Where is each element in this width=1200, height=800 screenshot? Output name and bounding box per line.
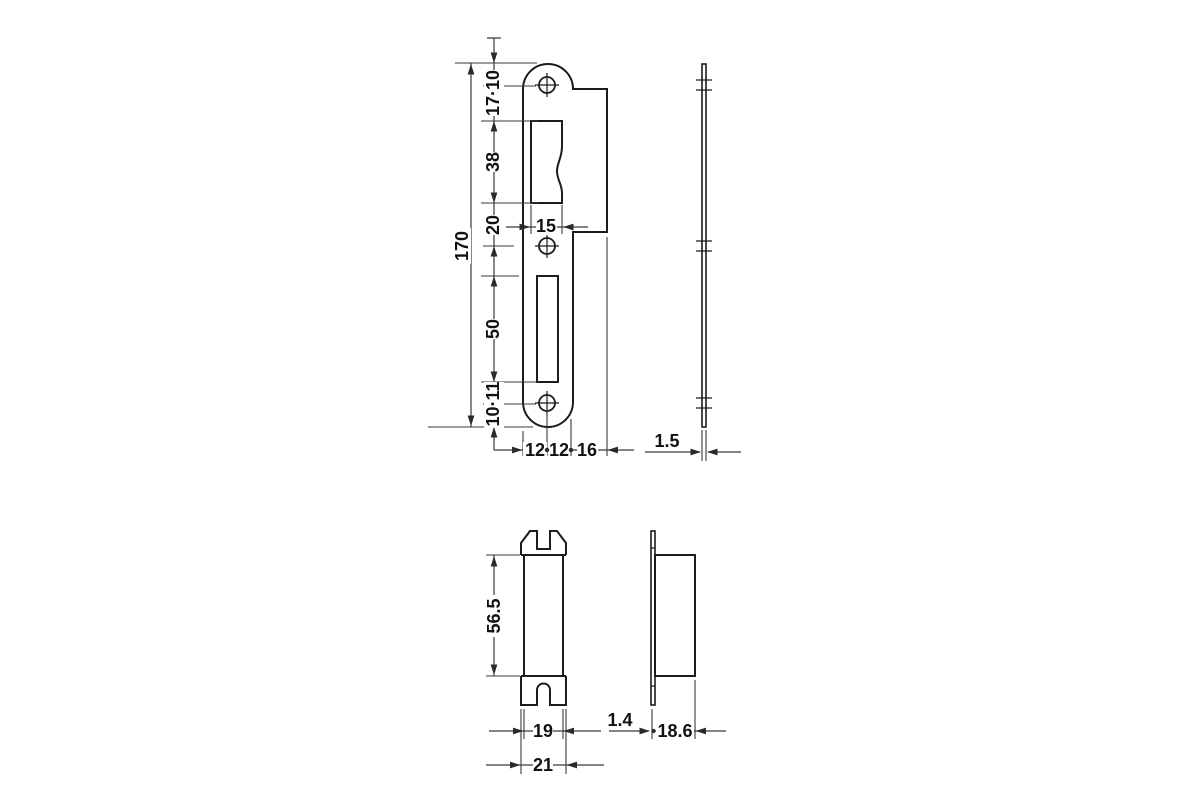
side-plate-hole-ticks bbox=[696, 80, 712, 408]
side-plate-profile bbox=[702, 64, 706, 427]
dim-latch-to-hole-label: 20 bbox=[483, 215, 503, 235]
dim-right-half-width-label: 12 bbox=[549, 440, 569, 460]
dim-latch-height-label: 38 bbox=[483, 152, 503, 172]
side-plate-extension-lines bbox=[702, 430, 706, 461]
front-view-dimensions: 170 17·10 38 20 50 10·11 15 12 12 16 bbox=[428, 38, 634, 460]
dim-left-half-width-label: 12 bbox=[525, 440, 545, 460]
dim-box-depth-label: 18.6 bbox=[657, 721, 692, 741]
latch-opening bbox=[531, 121, 562, 203]
technical-drawing-canvas: 170 17·10 38 20 50 10·11 15 12 12 16 1.5… bbox=[0, 0, 1200, 800]
side-plate-arrows bbox=[691, 449, 718, 456]
dim-bottom-segments-label: 10·11 bbox=[483, 381, 503, 426]
dust-box-side-view: 1.4 18.6 bbox=[607, 531, 726, 741]
dust-box-side-body bbox=[655, 555, 695, 676]
dust-box-front-view: 56.5 19 21 bbox=[484, 531, 604, 775]
dim-flange-thickness-label: 1.4 bbox=[607, 710, 632, 730]
dust-box-outline bbox=[521, 531, 566, 705]
dim-box-body-width-label: 19 bbox=[533, 721, 553, 741]
dim-top-segments-label: 17·10 bbox=[483, 70, 503, 116]
box-dim-dot bbox=[651, 729, 655, 733]
label-masks-front bbox=[452, 70, 598, 459]
dim-latch-width-label: 15 bbox=[536, 216, 556, 236]
chain-dim-dot-2 bbox=[569, 448, 573, 452]
dim-overall-length-label: 170 bbox=[452, 231, 472, 261]
dust-box-extension-lines bbox=[486, 555, 566, 774]
bolt-opening bbox=[537, 276, 558, 382]
dim-box-flange-width-label: 21 bbox=[533, 755, 553, 775]
strike-plate-side-view: 1.5 bbox=[645, 64, 741, 461]
drawing-page: 170 17·10 38 20 50 10·11 15 12 12 16 1.5… bbox=[0, 0, 1200, 800]
strike-plate-front-view bbox=[523, 64, 607, 427]
dim-bolt-height-label: 50 bbox=[483, 319, 503, 339]
dim-lip-width-label: 16 bbox=[577, 440, 597, 460]
dim-box-inner-height-label: 56.5 bbox=[484, 598, 504, 633]
dim-plate-thickness-label: 1.5 bbox=[654, 431, 679, 451]
